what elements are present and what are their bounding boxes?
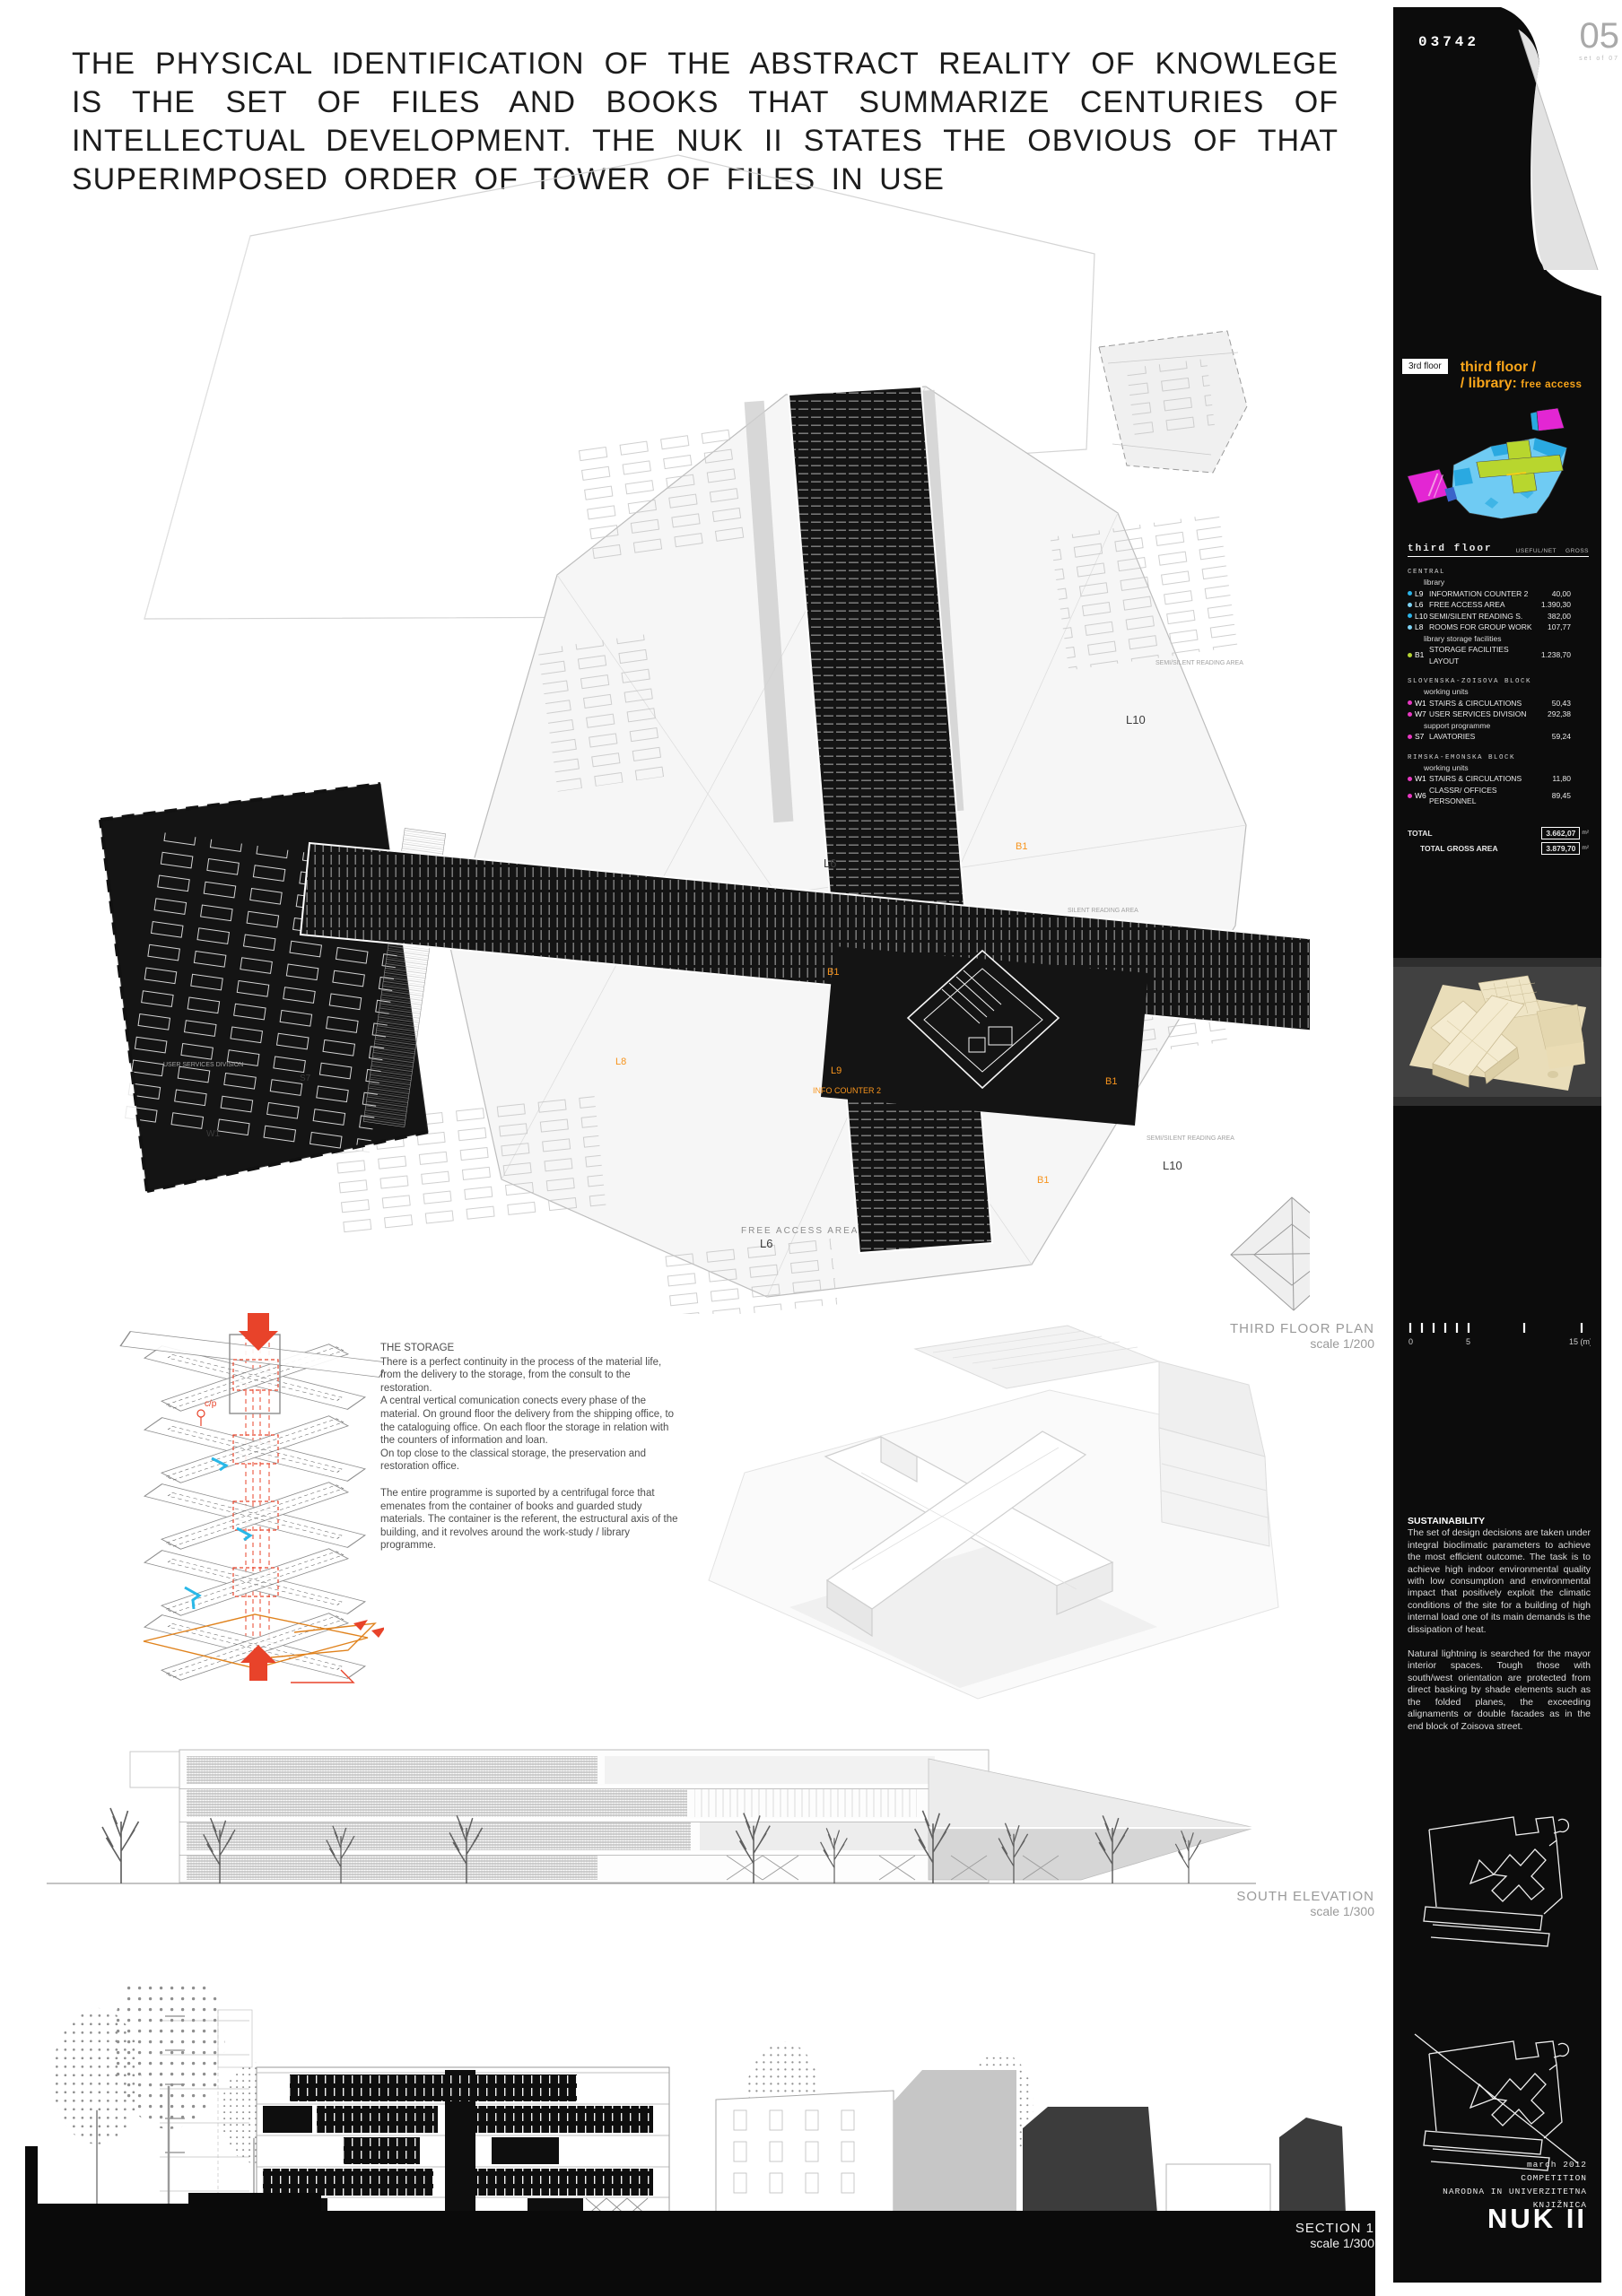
svg-text:0: 0	[1408, 1337, 1413, 1346]
elevation-caption: SOUTH ELEVATION scale 1/300	[1236, 1889, 1374, 1918]
plan-label: L10	[1126, 713, 1146, 726]
plan-label: B1	[1105, 1076, 1117, 1087]
table-title: third floor	[1408, 544, 1516, 554]
svg-text:15 (m): 15 (m)	[1569, 1337, 1591, 1346]
scale-bar: 0 5 15 (m)	[1402, 1321, 1591, 1352]
program-dot	[1408, 735, 1412, 739]
table-subheading: working units	[1424, 762, 1589, 774]
plan-label: SEMI/SILENT READING AREA	[1147, 1135, 1234, 1142]
dark-building-2	[1279, 2118, 1346, 2213]
program-dot	[1408, 794, 1412, 798]
plan-label: L8	[615, 1057, 626, 1067]
program-dot	[1408, 613, 1412, 618]
plan-label: L10	[1163, 1159, 1182, 1172]
col-useful-net: USEFUL/NET	[1516, 548, 1557, 554]
plan-label: L6	[824, 857, 836, 870]
gray-mass-building	[894, 2070, 1016, 2213]
program-dot	[1408, 777, 1412, 781]
section-drawing	[25, 1985, 1375, 2296]
site-diagram-2	[1408, 2022, 1587, 2174]
table-row: W6CLASSR/ OFFICES PERSONNEL89,45	[1408, 785, 1589, 807]
page-number: 05 set of 07	[1548, 18, 1619, 62]
entry-code: 03742	[1418, 34, 1479, 50]
total-row: TOTAL3.662,07m²	[1408, 827, 1589, 839]
plan-caption: THIRD FLOOR PLAN scale 1/200	[1230, 1321, 1374, 1351]
table-row: L9INFORMATION COUNTER 240,00	[1408, 588, 1589, 600]
program-dot	[1408, 712, 1412, 717]
program-dot	[1408, 653, 1412, 657]
table-subheading: library storage facilities	[1424, 633, 1589, 645]
table-row: W1STAIRS & CIRCULATIONS11,80	[1408, 773, 1589, 785]
storage-title: THE STORAGE	[380, 1342, 680, 1355]
table-subheading: support programme	[1424, 720, 1589, 732]
table-subheading: working units	[1424, 686, 1589, 698]
plan-label: B1	[1016, 841, 1027, 852]
plan-label: S7	[300, 1074, 311, 1083]
plan-label: L9	[831, 1065, 842, 1076]
program-color-diagram	[1402, 405, 1592, 547]
program-dot	[1408, 625, 1412, 630]
col-gross: GROSS	[1565, 548, 1589, 554]
dark-building-1	[1023, 2107, 1157, 2213]
axon-cp-label: c/p	[205, 1399, 217, 1409]
table-row: L10SEMI/SILENT READING S.382,00	[1408, 611, 1589, 622]
model-photo	[1393, 958, 1601, 1106]
plan-fragment-top-right	[1099, 331, 1247, 473]
table-row: W7USER SERVICES DIVISION292,38	[1408, 709, 1589, 720]
plan-label: B1	[1037, 1175, 1049, 1186]
plan-label: INFO COUNTER 2	[813, 1086, 881, 1095]
fragment-bottom-right	[1231, 1197, 1310, 1310]
table-subheading: library	[1424, 577, 1589, 588]
floor-tag-row: 3rd floor third floor / / library: free …	[1402, 359, 1582, 392]
floor-tag: 3rd floor	[1402, 359, 1448, 374]
plan-label: FREE ACCESS AREA	[741, 1226, 859, 1236]
area-table: third floorUSEFUL/NETGROSSCENTRALlibrary…	[1408, 544, 1589, 855]
section-caption: SECTION 1 scale 1/300	[1295, 2221, 1374, 2250]
table-row: L8ROOMS FOR GROUP WORK107,77	[1408, 622, 1589, 633]
table-row: B1STORAGE FACILITIES LAYOUT1.238,70	[1408, 644, 1589, 666]
program-dot	[1408, 700, 1412, 705]
south-elevation-drawing	[45, 1707, 1269, 1902]
third-floor-plan-drawing: L6L6L10L10L8L9INFO COUNTER 2B1B1B1B1FREE…	[45, 139, 1310, 1314]
table-row: W1STAIRS & CIRCULATIONS50,43	[1408, 698, 1589, 709]
plan-label: B1	[827, 967, 839, 978]
sustainability-block: SUSTAINABILITY The set of design decisio…	[1408, 1516, 1591, 1733]
table-row: S7LAVATORIES59,24	[1408, 731, 1589, 743]
plan-label: SILENT READING AREA	[1068, 908, 1138, 914]
plan-label: USER SERVICES DIVISION	[163, 1062, 243, 1068]
model-render-3d	[691, 1311, 1301, 1724]
plan-label: SEMI/SILENT READING AREA	[1155, 660, 1243, 666]
plan-label: L6	[760, 1237, 772, 1250]
plan-label: W1	[206, 1129, 220, 1139]
gross-total-row: TOTAL GROSS AREA3.879,70m²	[1408, 842, 1589, 855]
sidebar: 03742 3rd floor third floor / / library:…	[1393, 7, 1601, 2283]
left-wing	[100, 784, 446, 1191]
table-section-title: RIMSKA-EMONSKA BLOCK	[1408, 754, 1589, 761]
competition-board: THE PHYSICAL IDENTIFICATION OF THE ABSTR…	[0, 0, 1622, 2296]
program-dot	[1408, 591, 1412, 596]
storage-text-block: THE STORAGE There is a perfect continuit…	[380, 1342, 680, 1552]
site-diagram-1	[1408, 1797, 1587, 1950]
table-section-title: CENTRAL	[1408, 569, 1589, 576]
storage-axonometric-diagram: c/p	[79, 1308, 384, 1689]
table-section-title: SLOVENSKA-ZOISOVA BLOCK	[1408, 678, 1589, 685]
nuk-logo: NUK II	[1487, 2203, 1587, 2235]
svg-text:5: 5	[1466, 1337, 1470, 1346]
program-dot	[1408, 603, 1412, 607]
sustainability-title: SUSTAINABILITY	[1408, 1516, 1591, 1527]
floor-title: third floor / / library: free access	[1461, 359, 1583, 392]
neighbour-building-outline	[716, 2091, 894, 2213]
table-row: L6FREE ACCESS AREA1.390,30	[1408, 599, 1589, 611]
